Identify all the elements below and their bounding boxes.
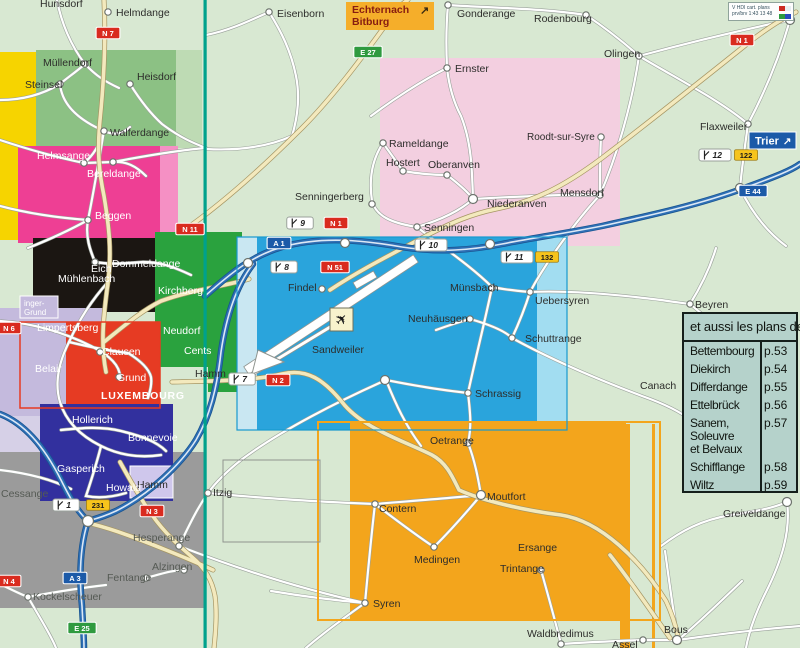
- road-sign-label-n-11: N 11: [182, 225, 197, 234]
- town-dot: [85, 217, 91, 223]
- town-label-grund: Grund: [117, 372, 146, 384]
- town-label-greiveldange: Greiveldange: [723, 508, 786, 520]
- road-sign-label-132: 132: [541, 253, 554, 262]
- road-sign-label-a-1: A 1: [273, 239, 284, 248]
- town-dot: [362, 600, 368, 606]
- legend-title: et aussi les plans de: [684, 314, 796, 342]
- town-label-gasperich: Gasperich: [57, 463, 105, 475]
- road-sign-label-n-1: N 1: [736, 36, 748, 45]
- town-label-beyren: Beyren: [695, 299, 728, 311]
- town-label-luxembourg: LUXEMBOURG: [101, 390, 185, 402]
- town-dot: [414, 224, 420, 230]
- town-label-rameldange: Rameldange: [389, 138, 449, 150]
- publisher-note: V HDI cart. plans prv/brv 1:43 13 48: [728, 2, 794, 21]
- town-label-oberanven: Oberanven: [428, 159, 480, 171]
- road-sign-label-n-2: N 2: [272, 376, 284, 385]
- legend-town-name: Bettembourg: [690, 345, 761, 358]
- legend-row: Sanem, Soleuvre et Belvauxp.57: [684, 414, 796, 458]
- town-label-cessange: Cessange: [1, 488, 48, 500]
- motorway-exit-number-9: 9: [300, 218, 305, 228]
- dest-arrow-icon: ↗: [420, 5, 429, 17]
- town-dot: [127, 81, 133, 87]
- area-plan-walferdange-ext: [176, 50, 202, 148]
- town-dot: [341, 239, 350, 248]
- town-dot: [444, 65, 450, 71]
- motorway-exit-number-8: 8: [284, 262, 289, 272]
- town-label-dommeldange: Dommeldange: [112, 258, 180, 270]
- town-dot: [380, 140, 386, 146]
- legend-row: Ettelbrückp.56: [684, 396, 796, 414]
- town-label-schrassig: Schrassig: [475, 388, 521, 400]
- motorway-exit-number-1: 1: [66, 500, 71, 510]
- road-sign-label-231: 231: [92, 501, 105, 510]
- town-label-hunsdorf: Hunsdorf: [40, 0, 83, 10]
- road-sign-label-n-4: N 4: [3, 577, 16, 586]
- town-dot: [110, 159, 116, 165]
- road-sign-label-n-51: N 51: [327, 263, 343, 272]
- town-label-uebersyren: Uebersyren: [535, 295, 589, 307]
- legend-page-number: p.57: [761, 417, 796, 456]
- area-plan-orange-strip: [620, 424, 630, 648]
- town-label-bonnevoie: Bonnevoie: [128, 432, 178, 444]
- town-label-gonderange: Gonderange: [457, 8, 516, 20]
- legend-page-number: p.56: [761, 399, 796, 412]
- town-label-olingen: Olingen: [604, 48, 640, 60]
- town-label-helmdange: Helmdange: [116, 7, 170, 19]
- town-dot: [444, 172, 450, 178]
- road-sign-label-n-3: N 3: [146, 507, 158, 516]
- town-label-hollerich: Hollerich: [72, 414, 113, 426]
- town-label-steinsel: Steinsel: [25, 79, 62, 91]
- town-dot: [486, 240, 495, 249]
- town-label-itzig: Itzig: [213, 487, 232, 499]
- plan-boundary-line: [204, 0, 207, 648]
- town-label-niederanven: Niederanven: [487, 198, 547, 210]
- town-dot: [598, 134, 604, 140]
- town-label-contern: Contern: [379, 503, 417, 515]
- town-label-schuttrange: Schuttrange: [525, 333, 582, 345]
- legend-page-number: p.55: [761, 381, 796, 394]
- town-dot: [25, 594, 31, 600]
- road-sign-label-n-7: N 7: [102, 29, 114, 38]
- legend-row: Bettembourgp.53: [684, 342, 796, 360]
- town-dot: [266, 9, 272, 15]
- road-sign-label-122: 122: [740, 151, 753, 160]
- town-label-roodt-sur-syre: Roodt-sur-Syre: [527, 132, 595, 143]
- town-label-medingen: Medingen: [414, 554, 460, 566]
- dest-trier-arrow-icon: ↗: [783, 137, 791, 148]
- town-label-moutfort: Moutfort: [487, 491, 526, 503]
- town-dot: [558, 641, 564, 647]
- town-label-mensdorf: Mensdorf: [560, 187, 604, 199]
- town-label-senningen: Senningen: [424, 222, 474, 234]
- map-canvas: ✈HunsdorfHelmdangeMüllendorfSteinselHeis…: [0, 0, 800, 648]
- town-label-rodenbourg: Rodenbourg: [534, 13, 592, 25]
- town-label-belair: Belair: [35, 363, 62, 375]
- motorway-exit-number-12: 12: [713, 150, 723, 160]
- legend-row: Wiltzp.59: [684, 476, 796, 494]
- town-label-howald: Howald: [106, 482, 141, 494]
- dest-echternach-label: Echternach: [352, 4, 409, 16]
- town-label-limpertsberg: Limpertsberg: [37, 322, 98, 334]
- town-label-canach: Canach: [640, 380, 676, 392]
- town-label-syren: Syren: [373, 598, 401, 610]
- town-label-hamm: Hamm: [195, 368, 226, 380]
- legend-page-number: p.53: [761, 345, 796, 358]
- town-label-inger: inger-: [24, 299, 45, 308]
- town-label-m-llendorf: Müllendorf: [43, 57, 92, 69]
- town-dot: [101, 128, 107, 134]
- town-label-helmsange: Helmsange: [37, 150, 90, 162]
- town-label-hesperange: Hesperange: [133, 532, 190, 544]
- town-dot: [381, 376, 390, 385]
- road-sign-label-n-6: N 6: [3, 324, 15, 333]
- town-label-bereldange: Bereldange: [87, 168, 141, 180]
- legend-page-number: p.54: [761, 363, 796, 376]
- town-label-waldbredimus: Waldbredimus: [527, 628, 594, 640]
- legend-page-number: p.59: [761, 479, 796, 492]
- legend-town-name: Wiltz: [690, 479, 761, 492]
- town-label-bous: Bous: [664, 624, 688, 636]
- legend-row: Schifflangep.58: [684, 458, 796, 476]
- town-dot: [673, 636, 682, 645]
- town-label-m-nsbach: Münsbach: [450, 282, 499, 294]
- legend-rows: Bettembourgp.53Diekirchp.54Differdangep.…: [684, 342, 796, 491]
- town-label-fentange: Fentange: [107, 572, 152, 584]
- town-dot: [469, 195, 478, 204]
- town-label-kockelscheuer: Kockelscheuer: [33, 591, 102, 603]
- town-label-cents: Cents: [184, 345, 211, 357]
- dest-trier-label: Trier: [755, 136, 780, 148]
- town-dot: [640, 637, 646, 643]
- town-label-hamm: Hamm: [137, 479, 168, 491]
- town-dot: [372, 501, 378, 507]
- town-label-m-hlenbach: Mühlenbach: [58, 273, 115, 285]
- town-dot: [477, 491, 486, 500]
- town-label-neudorf: Neudorf: [163, 325, 200, 337]
- color-grid-icon: [779, 6, 791, 16]
- town-label-senningerberg: Senningerberg: [295, 191, 364, 203]
- town-label-hostert: Hostert: [386, 157, 420, 169]
- road-sign-label-e-25: E 25: [74, 624, 89, 633]
- road-sign-label-a-3: A 3: [69, 574, 80, 583]
- town-label-flaxweiler: Flaxweiler: [700, 121, 748, 133]
- town-dot: [431, 544, 437, 550]
- town-dot: [83, 516, 94, 527]
- town-dot: [369, 201, 375, 207]
- motorway-exit-number-10: 10: [429, 240, 439, 250]
- legend-town-name: Diekirch: [690, 363, 761, 376]
- plans-legend: et aussi les plans de Bettembourgp.53Die…: [682, 312, 798, 493]
- town-label-heisdorf: Heisdorf: [137, 71, 176, 83]
- town-dot: [783, 498, 792, 507]
- town-label-ernster: Ernster: [455, 63, 489, 75]
- road-sign-label-n-1: N 1: [330, 219, 342, 228]
- town-dot: [465, 390, 471, 396]
- town-label-alzingen: Alzingen: [152, 561, 192, 573]
- motorway-exit-number-11: 11: [515, 252, 524, 262]
- road-sign-label-e-44: E 44: [745, 187, 761, 196]
- town-label-beggen: Beggen: [95, 210, 131, 222]
- town-label-findel: Findel: [288, 282, 317, 294]
- legend-town-name: Ettelbrück: [690, 399, 761, 412]
- legend-town-name: Schifflange: [690, 461, 761, 474]
- town-dot: [105, 9, 111, 15]
- town-label-sandweiler: Sandweiler: [312, 344, 364, 356]
- legend-row: Differdangep.55: [684, 378, 796, 396]
- town-label-assel: Assel: [612, 639, 638, 648]
- town-dot: [205, 490, 211, 496]
- town-label-trintange: Trintange: [500, 563, 544, 575]
- dest-bitburg-label: Bitburg: [352, 16, 389, 28]
- town-label-clausen: Clausen: [102, 346, 141, 358]
- town-dot: [687, 301, 693, 307]
- town-dot: [467, 316, 473, 322]
- town-label-walferdange: Walferdange: [110, 127, 169, 139]
- town-dot: [527, 289, 533, 295]
- map-page: ✈HunsdorfHelmdangeMüllendorfSteinselHeis…: [0, 0, 800, 648]
- town-dot: [509, 335, 515, 341]
- town-dot: [244, 259, 253, 268]
- town-label-eisenborn: Eisenborn: [277, 8, 324, 20]
- legend-row: Diekirchp.54: [684, 360, 796, 378]
- town-label-grund: Grund: [24, 308, 46, 317]
- town-dot: [445, 2, 451, 8]
- legend-town-name: Sanem, Soleuvre et Belvaux: [690, 417, 761, 456]
- town-label-ersange: Ersange: [518, 542, 557, 554]
- town-label-neuh-usgen: Neuhäusgen: [408, 313, 468, 325]
- legend-page-number: p.58: [761, 461, 796, 474]
- road-sign-label-e-27: E 27: [360, 48, 375, 57]
- town-label-kirchberg: Kirchberg: [158, 285, 203, 297]
- town-dot: [319, 286, 325, 292]
- legend-town-name: Differdange: [690, 381, 761, 394]
- town-label-oetrange: Oetrange: [430, 435, 474, 447]
